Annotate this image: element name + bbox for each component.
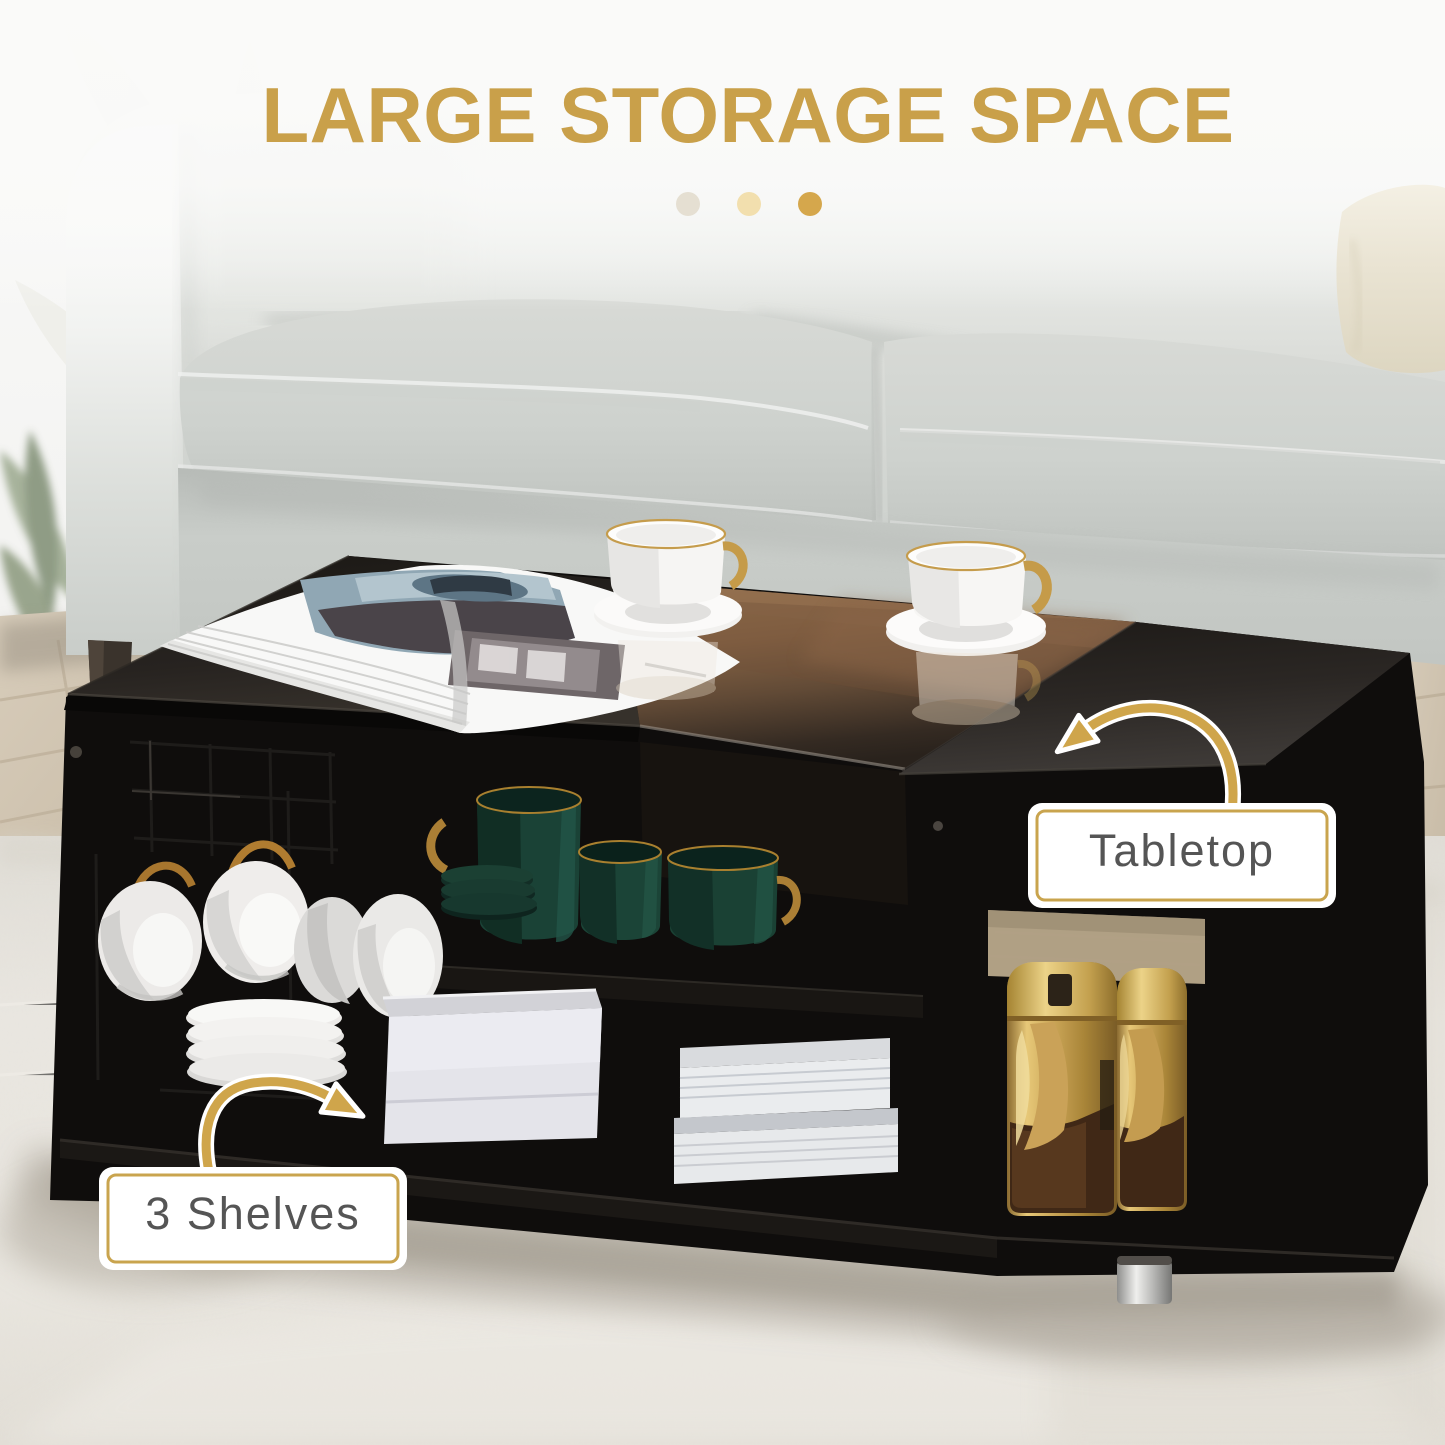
svg-text:3 Shelves: 3 Shelves (145, 1188, 361, 1239)
svg-text:LARGE STORAGE SPACE: LARGE STORAGE SPACE (261, 71, 1234, 159)
svg-text:Tabletop: Tabletop (1089, 825, 1275, 876)
